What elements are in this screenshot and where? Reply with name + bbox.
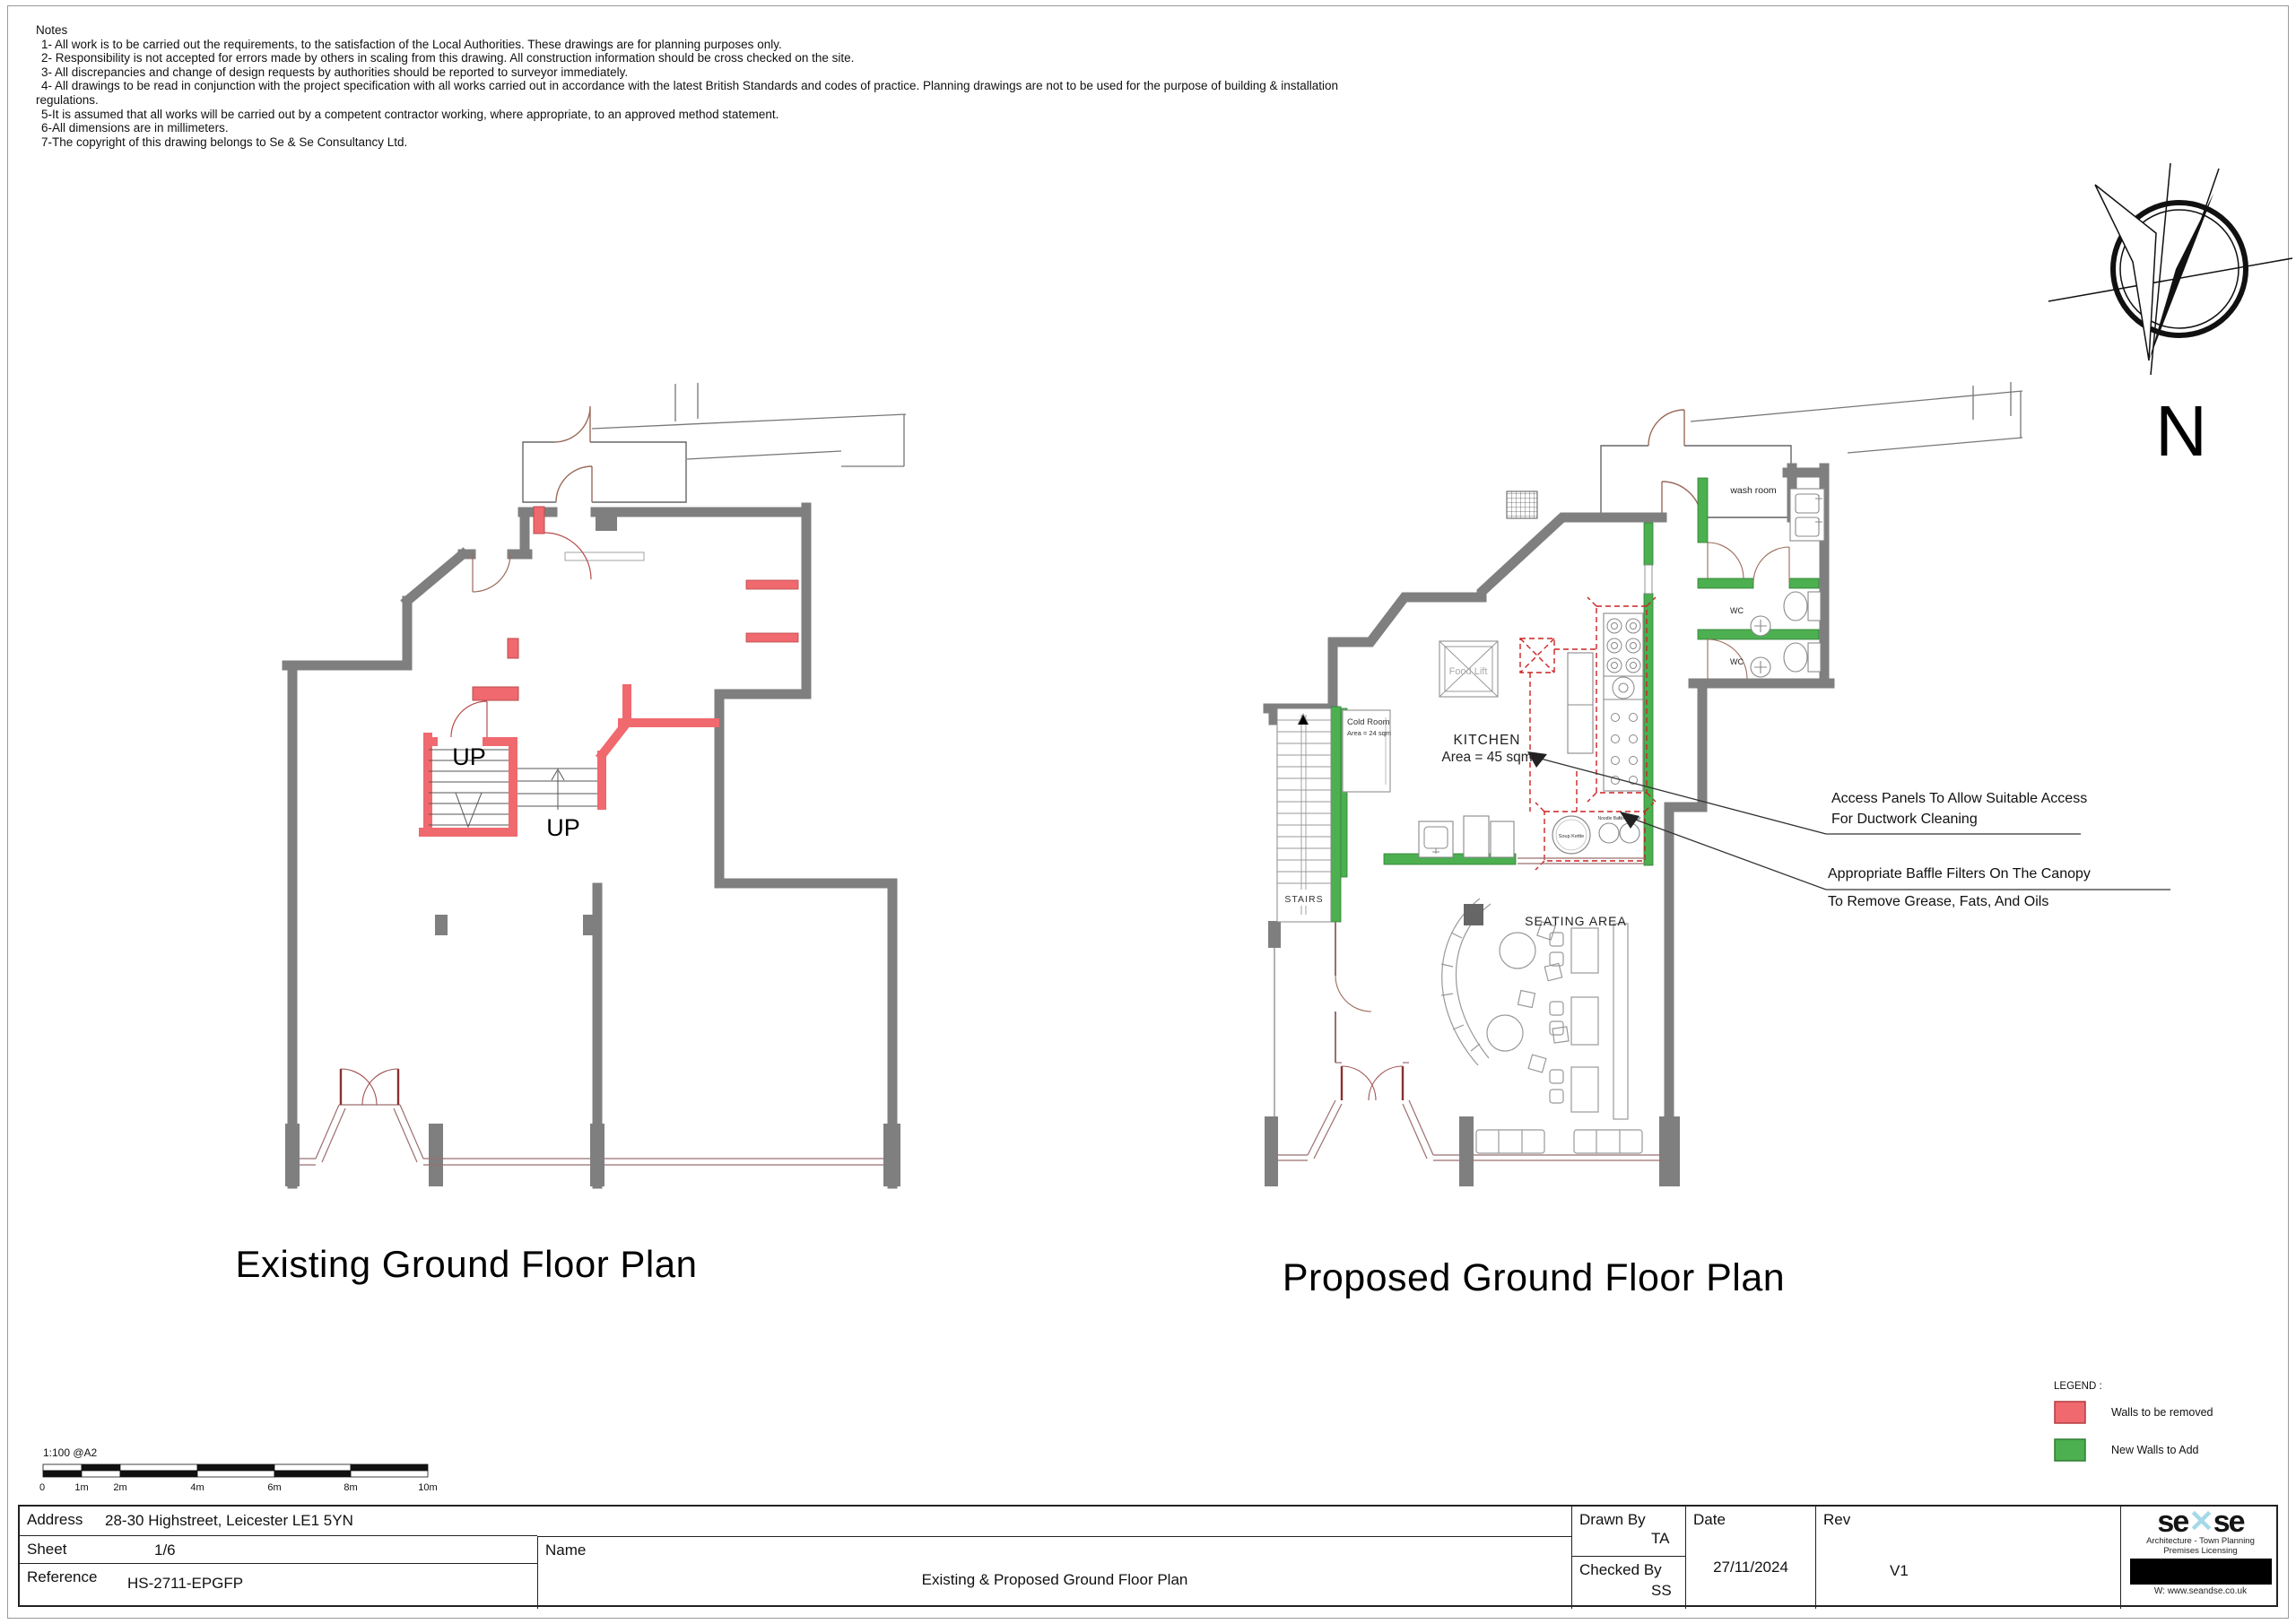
scale-ratio-label: 1:100 @A2: [43, 1446, 98, 1459]
existing-boundary-lines: [592, 383, 906, 466]
note-line: 7-The copyright of this drawing belongs …: [36, 135, 2188, 150]
scale-tick: 10m: [418, 1482, 437, 1493]
legend-item-walls-removed: Walls to be removed: [2054, 1401, 2278, 1424]
seating-area-label: SEATING AREA: [1525, 914, 1627, 928]
note-line: 5-It is assumed that all works will be c…: [36, 108, 2188, 122]
rev-value: V1: [1890, 1562, 1909, 1580]
address-row: Address 28-30 Highstreet, Leicester LE1 …: [20, 1507, 537, 1536]
title-block: Address 28-30 Highstreet, Leicester LE1 …: [18, 1505, 2278, 1607]
company-logo: se✕se Architecture - Town Planning Premi…: [2120, 1507, 2280, 1609]
up-label: UP: [546, 814, 580, 841]
annotation-baffle-filters-line1: Appropriate Baffle Filters On The Canopy: [1828, 866, 2091, 882]
interior-line: [565, 552, 644, 560]
scale-tick: 1m: [74, 1482, 88, 1493]
legend-title: LEGEND :: [2054, 1381, 2278, 1392]
washroom-doors: [1708, 543, 1789, 679]
name-cell: Name Existing & Proposed Ground Floor Pl…: [537, 1536, 1571, 1609]
wall-pier: [596, 517, 617, 531]
legend-label: Walls to be removed: [2111, 1406, 2213, 1419]
cold-room-label: Cold Room: [1347, 717, 1390, 727]
name-value: Existing & Proposed Ground Floor Plan: [538, 1571, 1571, 1589]
chimney-hatch: [1507, 491, 1537, 518]
noodle-bar-label: Noodle Bar: [1597, 816, 1620, 821]
seating-furniture: [1441, 899, 1642, 1153]
checked-by-cell: Checked By SS: [1571, 1557, 1685, 1609]
legend-swatch-green: [2054, 1438, 2086, 1462]
proposed-piers: [1265, 921, 1680, 1186]
legend-label: New Walls to Add: [2111, 1444, 2199, 1456]
address-value: 28-30 Highstreet, Leicester LE1 5YN: [105, 1512, 353, 1530]
proposed-floor-plan: Food Lift Cold Room Area = 24 sqm STAIRS: [1265, 382, 2022, 1186]
note-line: 2- Responsibility is not accepted for er…: [36, 51, 2188, 65]
proposed-rear-extension: [1601, 410, 1791, 517]
drawn-by-value: TA: [1651, 1530, 1669, 1548]
wc-label: WC: [1730, 606, 1744, 615]
sheet-label: Sheet: [27, 1541, 66, 1559]
cold-room-area-label: Area = 24 sqm: [1347, 729, 1391, 737]
existing-rear-extension: [523, 406, 686, 502]
drawn-by-cell: Drawn By TA: [1571, 1507, 1685, 1557]
existing-walls: [287, 508, 892, 1184]
date-label: Date: [1693, 1511, 1726, 1529]
rev-cell: Rev V1: [1815, 1507, 2120, 1609]
logo-website: W: www.seandse.co.uk: [2121, 1586, 2280, 1596]
existing-floor-plan: UP UP: [285, 383, 906, 1186]
annotation-baffle-filters-line2: To Remove Grease, Fats, And Oils: [1828, 894, 2048, 910]
proposed-staircase: STAIRS: [1277, 708, 1331, 922]
food-lift-label: Food Lift: [1449, 666, 1488, 677]
logo-tagline1: Architecture - Town Planning: [2121, 1536, 2280, 1546]
existing-entrance-doors: [341, 1069, 398, 1105]
logo-brand-right: se: [2213, 1505, 2244, 1539]
date-cell: Date 27/11/2024: [1685, 1507, 1815, 1609]
proposed-boundary-lines: [1691, 382, 2022, 453]
logo-x-icon: ✕: [2187, 1505, 2213, 1539]
sheet-row: Sheet 1/6: [20, 1536, 537, 1564]
annotation-access-panels-line2: For Ductwork Cleaning: [1831, 812, 1978, 828]
checked-by-label: Checked By: [1579, 1561, 1662, 1579]
reference-value: HS-2711-EPGFP: [127, 1575, 243, 1593]
legend-item-new-walls: New Walls to Add: [2054, 1438, 2278, 1462]
column: [435, 915, 448, 935]
notes-block: Notes 1- All work is to be carried out t…: [36, 23, 2188, 149]
notes-title: Notes: [36, 23, 2188, 38]
wc-label: WC: [1730, 657, 1744, 666]
logo-black-bar: [2130, 1559, 2272, 1585]
logo-brand-left: se: [2157, 1505, 2187, 1539]
scale-tick: 2m: [113, 1482, 126, 1493]
checked-by-value: SS: [1651, 1582, 1672, 1600]
note-line: 3- All discrepancies and change of desig…: [36, 65, 2188, 80]
note-line: regulations.: [36, 93, 2188, 108]
scale-tick: 0: [39, 1482, 45, 1493]
drawing-sheet: { "notes": { "title": "Notes", "items": …: [0, 0, 2296, 1624]
scale-tick: 4m: [190, 1482, 204, 1493]
toilet-icon: [1808, 592, 1821, 621]
legend-swatch-red: [2054, 1401, 2086, 1424]
note-line: 1- All work is to be carried out the req…: [36, 38, 2188, 52]
food-lift: Food Lift: [1439, 641, 1498, 697]
drawn-by-label: Drawn By: [1579, 1511, 1646, 1529]
compass-north-label: N: [2155, 391, 2207, 471]
reference-label: Reference: [27, 1568, 97, 1586]
existing-plan-title: Existing Ground Floor Plan: [161, 1243, 771, 1286]
note-line: 4- All drawings to be read in conjunctio…: [36, 79, 2188, 93]
proposed-plan-title: Proposed Ground Floor Plan: [1211, 1256, 1857, 1300]
rev-label: Rev: [1823, 1511, 1850, 1529]
name-label: Name: [545, 1541, 586, 1559]
shopfront-piers: [285, 1124, 900, 1186]
north-compass-icon: N: [2048, 163, 2292, 471]
kitchen-label: KITCHEN: [1453, 733, 1520, 748]
scale-tick: 8m: [344, 1482, 357, 1493]
note-line: 6-All dimensions are in millimeters.: [36, 121, 2188, 135]
sheet-value: 1/6: [154, 1541, 176, 1559]
column: [583, 915, 596, 935]
cold-room: Cold Room Area = 24 sqm: [1343, 710, 1391, 792]
scale-bar: 1:100 @A2 0 1m 2m 4m 6m 8m 10m: [39, 1446, 438, 1493]
reference-row: Reference HS-2711-EPGFP: [20, 1564, 537, 1609]
up-label: UP: [452, 743, 486, 770]
date-value: 27/11/2024: [1686, 1559, 1815, 1576]
address-label: Address: [27, 1511, 83, 1529]
scale-tick: 6m: [267, 1482, 281, 1493]
kitchen-area-label: Area = 45 sqm: [1441, 750, 1532, 765]
wash-room-label: wash room: [1729, 485, 1777, 496]
existing-doors: [451, 533, 591, 737]
logo-brand: se✕se: [2121, 1507, 2280, 1536]
annotation-access-panels-line1: Access Panels To Allow Suitable Access: [1831, 791, 2087, 807]
soup-kettle-label: Soup Kettle: [1559, 834, 1584, 839]
logo-tagline2: Premises Licensing: [2121, 1546, 2280, 1556]
toilet-icon: [1808, 643, 1821, 672]
legend: LEGEND : Walls to be removed New Walls t…: [2054, 1381, 2278, 1476]
stairs-label: STAIRS: [1284, 894, 1323, 905]
